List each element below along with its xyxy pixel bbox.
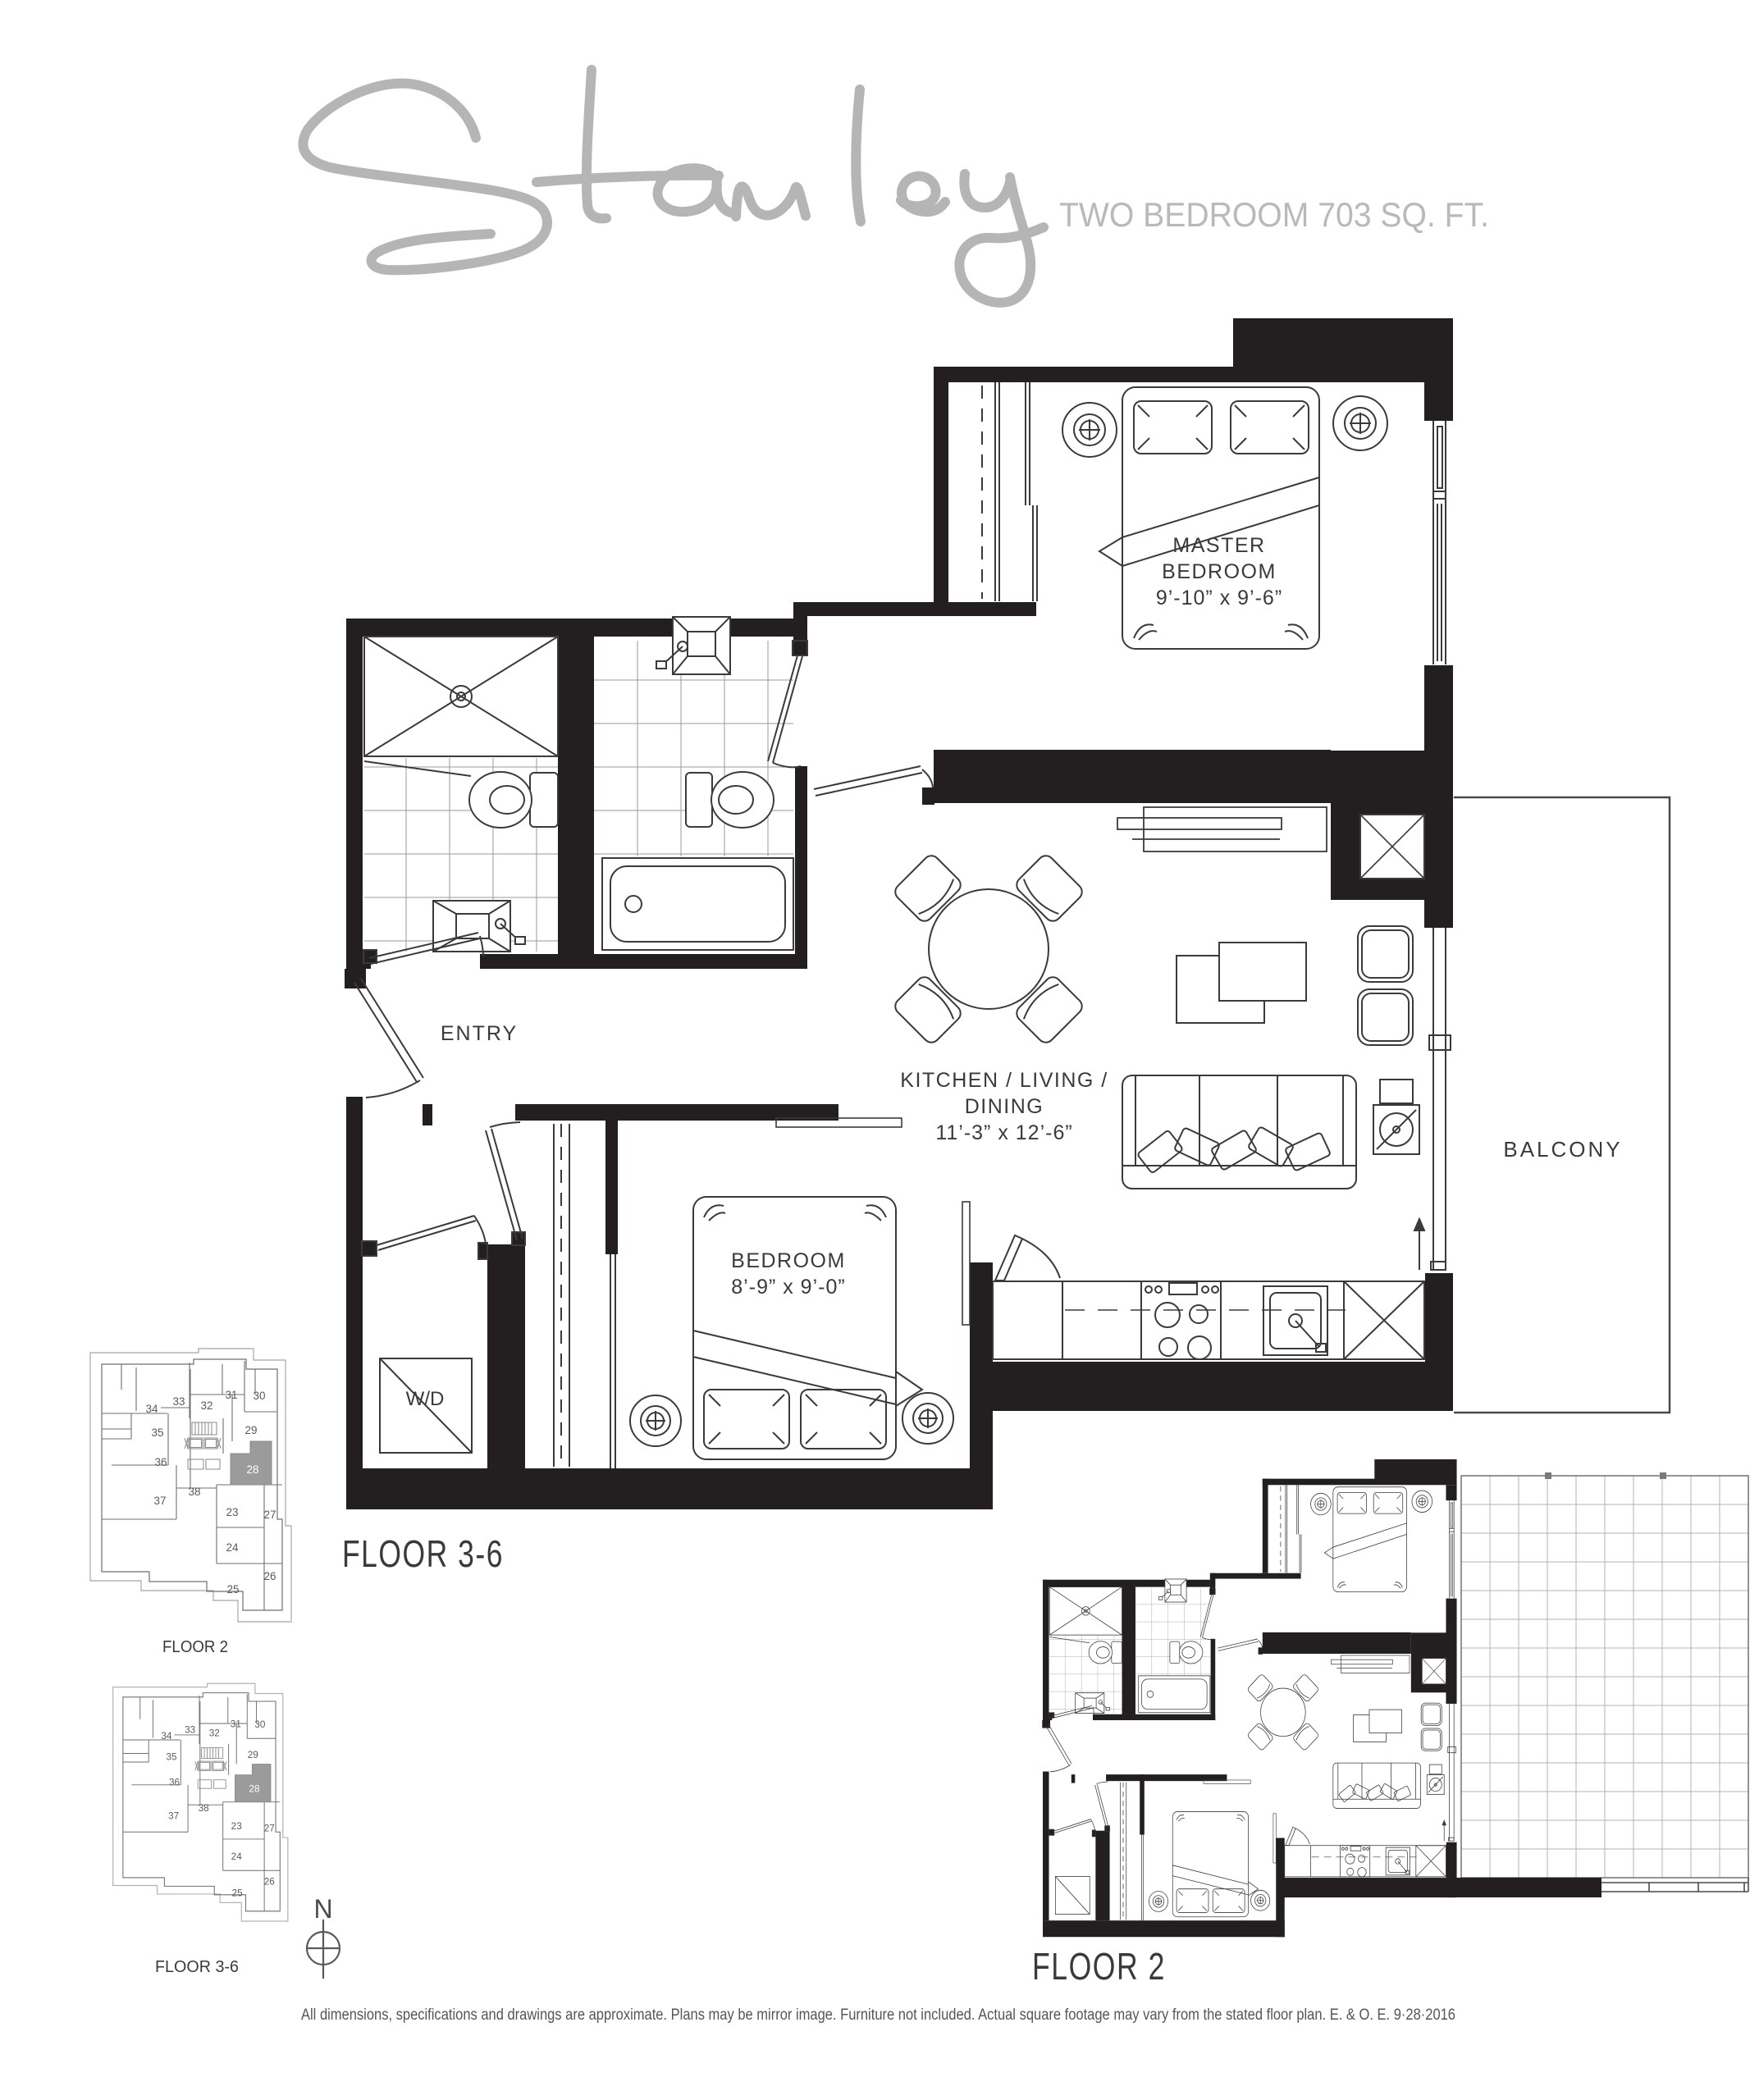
svg-text:26: 26 xyxy=(263,1570,276,1582)
svg-text:37: 37 xyxy=(153,1495,166,1507)
svg-text:33: 33 xyxy=(172,1395,185,1408)
svg-text:24: 24 xyxy=(226,1541,239,1554)
svg-text:27: 27 xyxy=(263,1509,276,1521)
svg-text:FLOOR 3-6: FLOOR 3-6 xyxy=(342,1532,504,1575)
svg-text:KITCHEN / LIVING /: KITCHEN / LIVING / xyxy=(900,1069,1108,1092)
svg-text:25: 25 xyxy=(226,1583,239,1596)
svg-text:8’-9” x 9’-0”: 8’-9” x 9’-0” xyxy=(731,1276,845,1299)
svg-text:BALCONY: BALCONY xyxy=(1503,1137,1622,1162)
svg-text:34: 34 xyxy=(145,1403,158,1415)
svg-text:FLOOR 2: FLOOR 2 xyxy=(162,1638,228,1656)
svg-text:31: 31 xyxy=(225,1389,237,1401)
svg-text:9’-10” x 9’-6”: 9’-10” x 9’-6” xyxy=(1156,587,1282,609)
svg-text:28: 28 xyxy=(246,1463,258,1476)
svg-text:BEDROOM: BEDROOM xyxy=(731,1249,846,1272)
svg-text:23: 23 xyxy=(226,1506,238,1518)
svg-text:All dimensions, specifications: All dimensions, specifications and drawi… xyxy=(301,2006,1455,2024)
svg-text:38: 38 xyxy=(188,1486,200,1498)
svg-text:30: 30 xyxy=(253,1390,265,1402)
svg-text:36: 36 xyxy=(154,1456,167,1468)
svg-text:FLOOR 3-6: FLOOR 3-6 xyxy=(155,1958,239,1976)
svg-text:29: 29 xyxy=(244,1424,257,1436)
svg-text:TWO BEDROOM 703 SQ. FT.: TWO BEDROOM 703 SQ. FT. xyxy=(1059,195,1489,234)
svg-text:35: 35 xyxy=(151,1427,163,1439)
svg-text:ENTRY: ENTRY xyxy=(441,1022,518,1045)
svg-text:BEDROOM: BEDROOM xyxy=(1162,560,1277,583)
svg-text:W/D: W/D xyxy=(406,1388,445,1410)
svg-text:MASTER: MASTER xyxy=(1172,534,1265,557)
svg-text:N: N xyxy=(313,1894,332,1924)
svg-text:FLOOR 2: FLOOR 2 xyxy=(1032,1945,1166,1988)
svg-text:11’-3” x 12’-6”: 11’-3” x 12’-6” xyxy=(935,1121,1072,1144)
svg-text:DINING: DINING xyxy=(965,1095,1044,1118)
svg-text:32: 32 xyxy=(200,1399,212,1412)
